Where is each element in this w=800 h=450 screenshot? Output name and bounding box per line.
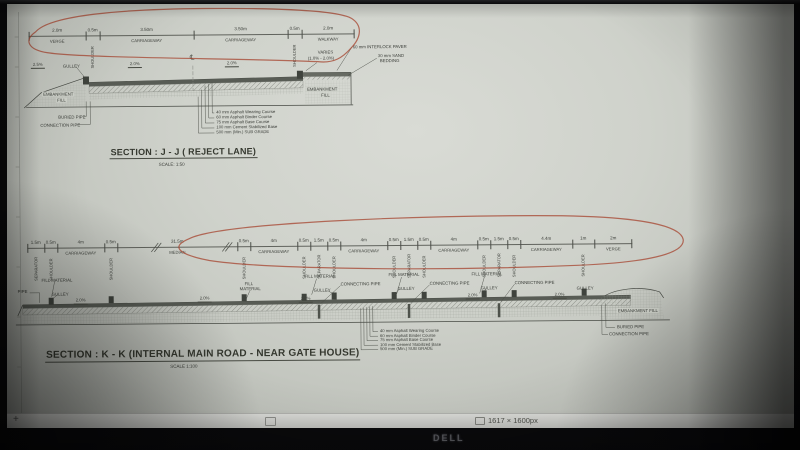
monitor-photo: 2.0mVERGE0.5mSHOULDER3.50mCARRIAGEWAY3.5…: [0, 0, 800, 450]
image-dimensions-label: 1617 × 1600px: [488, 416, 538, 425]
image-size-icon: [475, 417, 485, 425]
drawing-sheet: 2.0mVERGE0.5mSHOULDER3.50mCARRIAGEWAY3.5…: [7, 4, 794, 414]
dell-logo: DELL: [433, 433, 465, 443]
red-loop-section-jj: [29, 7, 360, 64]
selection-icon[interactable]: [265, 417, 276, 426]
red-pen-annotations: [7, 4, 794, 414]
image-dimensions: 1617 × 1600px: [475, 416, 538, 425]
zoom-in-icon[interactable]: +: [13, 414, 19, 425]
red-loop-section-kk: [179, 214, 684, 270]
monitor-screen: 2.0mVERGE0.5mSHOULDER3.50mCARRIAGEWAY3.5…: [7, 4, 794, 428]
image-viewer-canvas[interactable]: 2.0mVERGE0.5mSHOULDER3.50mCARRIAGEWAY3.5…: [7, 4, 794, 414]
viewer-status-bar: + 1617 × 1600px: [7, 413, 794, 428]
